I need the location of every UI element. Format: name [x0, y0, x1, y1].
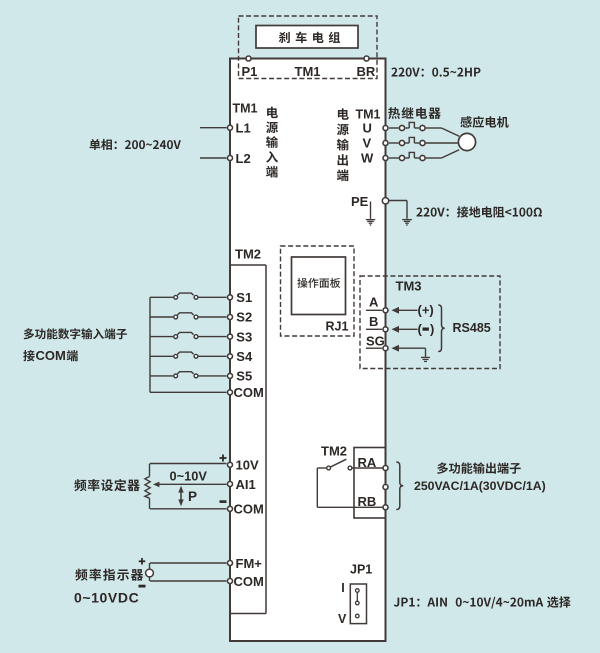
svg-text:BR: BR	[357, 64, 376, 79]
svg-text:RS485: RS485	[453, 321, 491, 335]
svg-text:S2: S2	[236, 310, 252, 325]
svg-text:L1: L1	[236, 121, 251, 136]
svg-text:(: (	[418, 321, 423, 336]
svg-text:I: I	[341, 581, 344, 595]
svg-text:250VAC/1A(30VDC/1A): 250VAC/1A(30VDC/1A)	[414, 479, 546, 493]
svg-text:0~10VDC: 0~10VDC	[74, 590, 139, 606]
svg-text:10V: 10V	[236, 458, 259, 473]
svg-text:TM3: TM3	[396, 279, 422, 294]
svg-text:(+): (+)	[418, 302, 434, 317]
svg-text:S4: S4	[236, 349, 253, 364]
svg-text:TM1: TM1	[233, 102, 258, 116]
svg-text:V: V	[363, 136, 372, 151]
svg-text:S5: S5	[236, 369, 252, 384]
svg-text:V: V	[338, 612, 347, 626]
svg-text:COM: COM	[234, 502, 264, 517]
svg-text:TM2: TM2	[321, 444, 347, 459]
svg-text:B: B	[369, 314, 378, 329]
svg-text:S3: S3	[236, 329, 252, 344]
svg-text:P: P	[188, 489, 197, 504]
svg-text:RJ1: RJ1	[326, 320, 349, 334]
svg-text:JP1: JP1	[350, 563, 372, 577]
svg-text:): )	[430, 321, 434, 336]
svg-text:P1: P1	[242, 64, 258, 79]
svg-text:L2: L2	[236, 151, 251, 166]
svg-text:COM: COM	[234, 574, 264, 589]
svg-text:FM+: FM+	[236, 556, 263, 571]
svg-text:A: A	[369, 295, 379, 310]
svg-text:U: U	[363, 121, 372, 136]
svg-text:COM: COM	[234, 385, 264, 400]
svg-text:TM1: TM1	[295, 64, 321, 79]
svg-text:W: W	[361, 151, 374, 166]
svg-text:AI1: AI1	[236, 477, 256, 492]
svg-text:SG: SG	[366, 334, 385, 349]
svg-text:S1: S1	[236, 290, 252, 305]
svg-text:TM1: TM1	[356, 108, 381, 122]
svg-text:TM2: TM2	[235, 247, 261, 262]
svg-text:PE: PE	[351, 194, 369, 209]
svg-text:0~10V: 0~10V	[170, 468, 208, 483]
svg-text:COM: COM	[36, 348, 66, 363]
